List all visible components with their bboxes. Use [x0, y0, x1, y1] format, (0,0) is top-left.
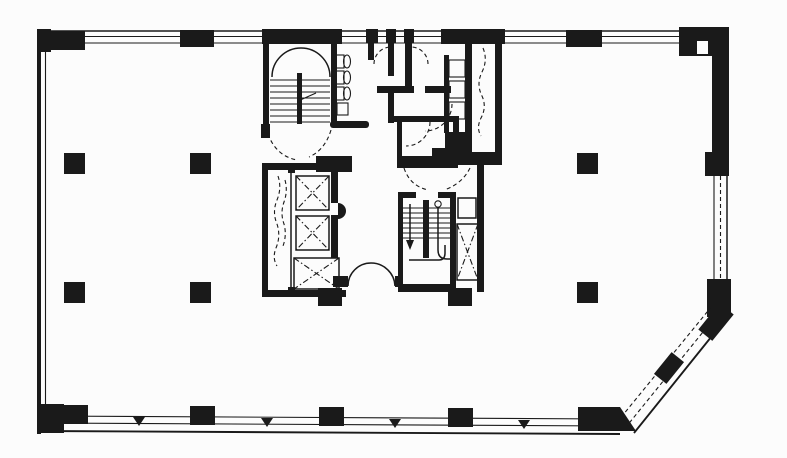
window-mullion [261, 418, 273, 427]
perimeter-column [63, 405, 88, 424]
chamfer-window-wall [618, 303, 734, 433]
stair-landing-arch [272, 48, 330, 77]
window-mullion [518, 420, 530, 429]
floor-plan-drawing [0, 0, 787, 458]
column [64, 282, 85, 303]
core-columns [318, 288, 472, 306]
perimeter-column [705, 152, 729, 176]
door-swing [406, 122, 430, 146]
left-wall [37, 30, 64, 434]
vent-shaft-squiggle [282, 180, 286, 246]
top-window-wall [37, 27, 729, 56]
restrooms [330, 42, 502, 154]
bottom-window-wall [37, 405, 636, 434]
elevator-car [296, 216, 329, 250]
elevator-car [294, 258, 339, 289]
perimeter-column [319, 407, 344, 426]
perimeter-column [190, 406, 215, 425]
elevator-bank [262, 156, 352, 297]
column [64, 153, 85, 174]
stall-door-swing [411, 47, 428, 64]
down-direction-arrow [406, 204, 414, 250]
lobby-double-door [333, 263, 403, 287]
column [318, 288, 342, 306]
door-swing [404, 168, 428, 190]
window-mullion [133, 417, 145, 426]
stair-center-rail [297, 73, 302, 124]
chamfer-end-column [578, 407, 636, 431]
column [190, 282, 211, 303]
perimeter-column [566, 30, 602, 47]
column [190, 153, 211, 174]
column [577, 282, 598, 303]
corner-column-bottom-left [37, 404, 64, 433]
column [448, 288, 472, 306]
perimeter-column [448, 408, 473, 427]
vent-shaft-squiggle [479, 48, 486, 136]
window-mullion [389, 419, 401, 428]
floor-plan [0, 0, 787, 458]
perimeter-column [51, 31, 85, 50]
sink [337, 103, 348, 115]
stairwell-2 [398, 192, 456, 292]
door-leaf [348, 263, 371, 286]
right-wall [705, 52, 731, 317]
door-swing [444, 168, 470, 190]
vent-shaft-squiggle [274, 176, 280, 266]
stair-center-rail [423, 200, 429, 258]
perimeter-column [180, 30, 214, 47]
counter [330, 121, 369, 128]
column [577, 153, 598, 174]
door-leaf [371, 263, 395, 286]
x-shaft [457, 165, 484, 292]
lobby-door-swings [268, 130, 331, 160]
window-mullion-block [654, 352, 684, 384]
stairwell-1 [261, 42, 337, 138]
door-jamb-bump [338, 203, 346, 219]
elevator-car [296, 176, 329, 210]
